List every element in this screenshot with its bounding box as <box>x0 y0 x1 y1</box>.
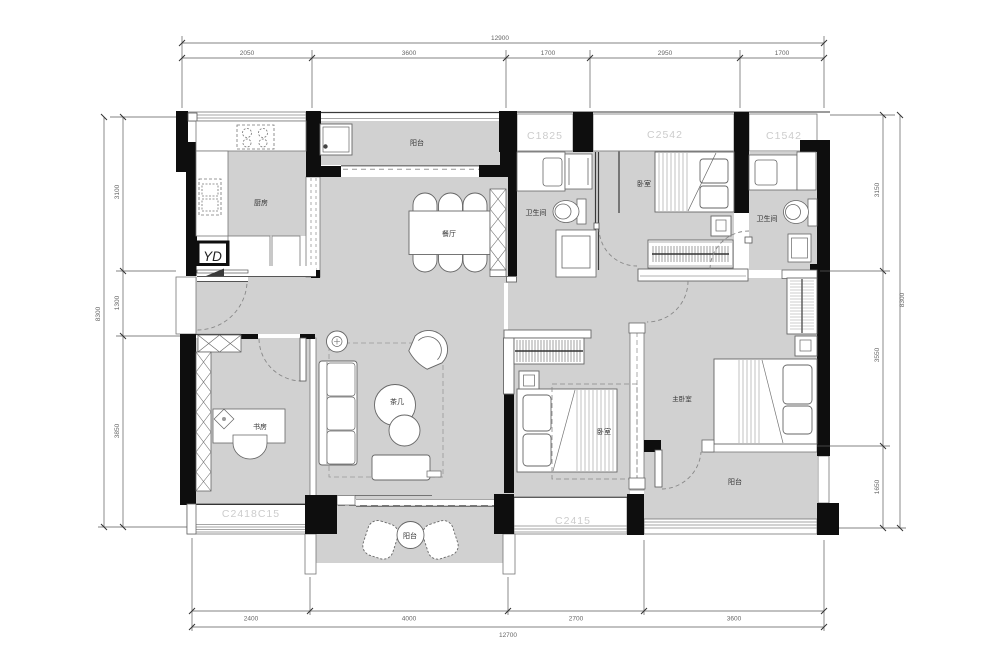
svg-text:2950: 2950 <box>658 50 673 57</box>
svg-text:YD: YD <box>203 249 222 264</box>
svg-text:2050: 2050 <box>240 50 255 57</box>
svg-text:书房: 书房 <box>253 422 267 431</box>
svg-text:3100: 3100 <box>114 184 121 199</box>
svg-text:8300: 8300 <box>95 306 102 321</box>
svg-text:阳台: 阳台 <box>410 138 424 147</box>
svg-text:餐厅: 餐厅 <box>442 229 456 238</box>
svg-text:1700: 1700 <box>775 50 790 57</box>
svg-text:1300: 1300 <box>114 295 121 310</box>
svg-text:2400: 2400 <box>244 616 259 623</box>
svg-text:卫生间: 卫生间 <box>757 214 778 223</box>
svg-text:2700: 2700 <box>569 616 584 623</box>
svg-text:12900: 12900 <box>491 35 509 42</box>
svg-text:4000: 4000 <box>402 616 417 623</box>
svg-text:12700: 12700 <box>499 632 517 639</box>
svg-text:C1542: C1542 <box>766 130 802 142</box>
svg-text:茶几: 茶几 <box>390 397 404 406</box>
svg-text:3150: 3150 <box>874 182 881 197</box>
svg-text:主卧室: 主卧室 <box>672 394 692 403</box>
svg-text:3600: 3600 <box>402 50 417 57</box>
svg-text:阳台: 阳台 <box>728 477 742 486</box>
svg-text:卧室: 卧室 <box>637 179 651 188</box>
svg-text:8300: 8300 <box>899 292 906 307</box>
svg-text:卧室: 卧室 <box>597 427 611 436</box>
svg-text:C1825: C1825 <box>527 130 563 142</box>
svg-text:C2415: C2415 <box>555 515 591 527</box>
svg-text:阳台: 阳台 <box>403 531 417 540</box>
svg-text:3600: 3600 <box>727 616 742 623</box>
svg-text:C2542: C2542 <box>647 129 683 141</box>
svg-text:3850: 3850 <box>114 423 121 438</box>
svg-text:1650: 1650 <box>874 479 881 494</box>
svg-text:C2418C15: C2418C15 <box>222 508 280 520</box>
svg-text:卫生间: 卫生间 <box>526 208 547 217</box>
svg-text:厨房: 厨房 <box>254 198 268 207</box>
svg-text:1700: 1700 <box>541 50 556 57</box>
svg-text:3550: 3550 <box>874 347 881 362</box>
